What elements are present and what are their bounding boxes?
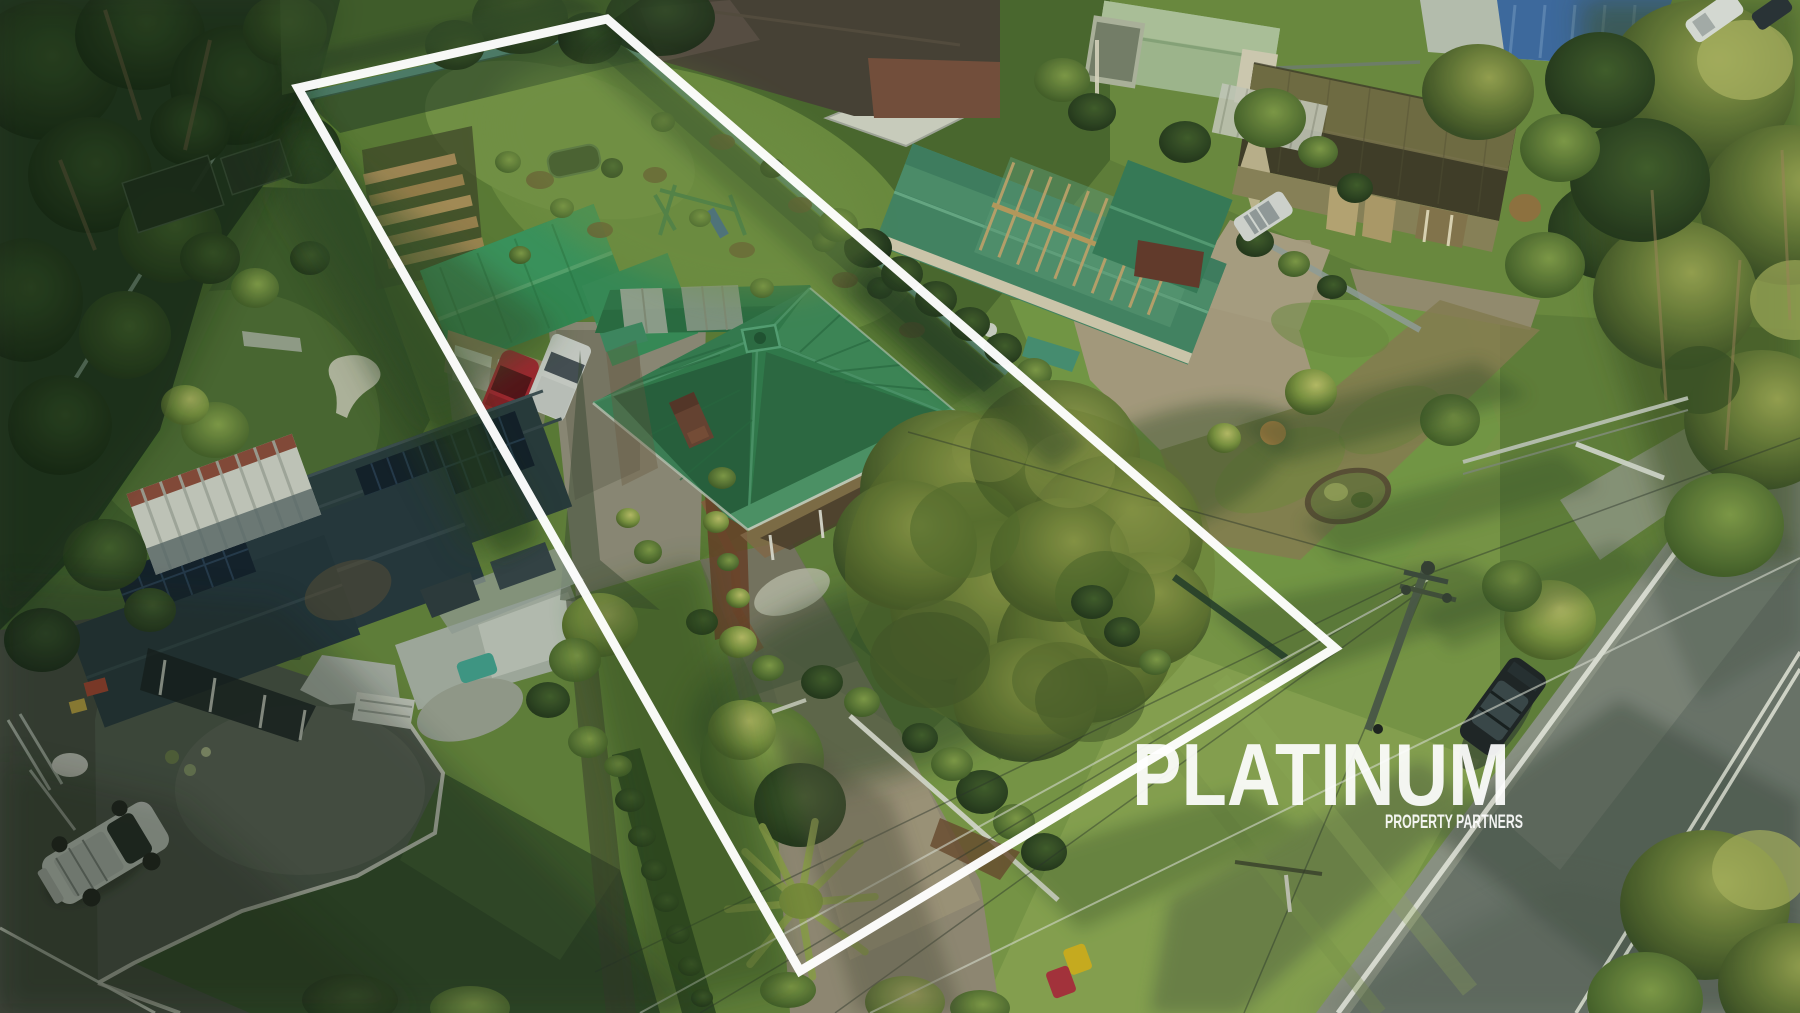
- svg-text:PLATINUM: PLATINUM: [1132, 725, 1510, 824]
- svg-text:PROPERTY PARTNERS: PROPERTY PARTNERS: [1385, 812, 1523, 833]
